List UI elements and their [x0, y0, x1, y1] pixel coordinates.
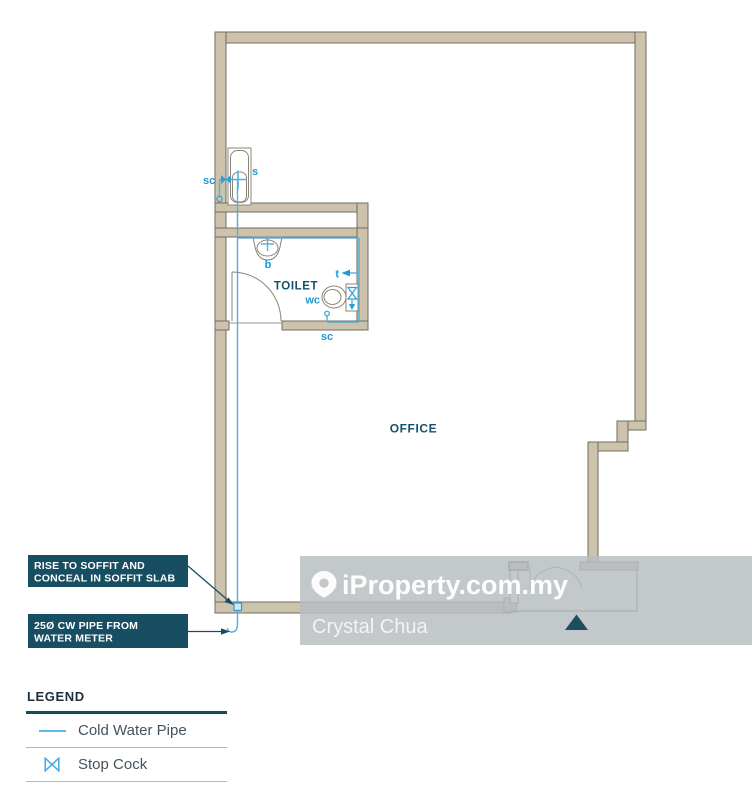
callout-cw-pipe: 25Ø CW PIPE FROM WATER METER [28, 614, 230, 648]
watermark: iProperty.com.my Crystal Chua [300, 556, 752, 645]
tap-arrowhead [342, 270, 351, 277]
label-basin: b [265, 259, 272, 271]
callout-rise-to-soffit: RISE TO SOFFIT AND CONCEAL IN SOFFIT SLA… [28, 555, 234, 605]
label-tap: t [335, 269, 339, 281]
watermark-brand: iProperty.com.my [342, 570, 568, 600]
toilet-door-swing-arc [232, 272, 281, 321]
callout-rise-line1: RISE TO SOFFIT AND [34, 560, 145, 572]
wall-right-lower [588, 442, 598, 563]
label-shower: s [252, 166, 258, 178]
callout-pipe-line2: WATER METER [34, 633, 113, 645]
callout-rise-line2: CONCEAL IN SOFFIT SLAB [34, 573, 176, 585]
label-stopcock-bottom: sc [321, 331, 333, 343]
callout-pipe-arrowhead [221, 628, 230, 634]
soffit-rise-marker [234, 603, 242, 611]
pipe-end-hook [228, 620, 238, 632]
callout-pipe-line1: 25Ø CW PIPE FROM [34, 620, 138, 632]
legend-title: LEGEND [27, 689, 227, 704]
legend-divider-bottom [26, 781, 227, 782]
legend-row-cold-water-pipe: Cold Water Pipe [26, 714, 227, 747]
label-toilet-room: TOILET [274, 281, 318, 293]
legend-label-cold-water-pipe: Cold Water Pipe [78, 722, 187, 739]
wall-right-upper [635, 32, 646, 430]
label-wc: wc [304, 295, 320, 307]
floor-plan-drawing: sc s b wc t sc TOILET OFFICE iProperty.c… [0, 0, 752, 796]
label-office-room: OFFICE [390, 422, 438, 436]
label-stopcock-top: sc [203, 175, 215, 187]
wall-top [215, 32, 646, 43]
floor-plan-page: sc s b wc t sc TOILET OFFICE iProperty.c… [0, 0, 752, 796]
cold-water-pipe-icon [26, 730, 78, 732]
legend-label-stop-cock: Stop Cock [78, 756, 147, 773]
stop-cock-icon [26, 757, 78, 772]
legend-row-stop-cock: Stop Cock [26, 748, 227, 781]
bath-outline [228, 148, 251, 205]
wall-toilet-bottom-left [215, 321, 229, 330]
sc-bottom-symbol [325, 311, 330, 316]
watermark-agent: Crystal Chua [312, 616, 428, 638]
legend: LEGEND Cold Water Pipe Stop Cock [26, 689, 227, 782]
